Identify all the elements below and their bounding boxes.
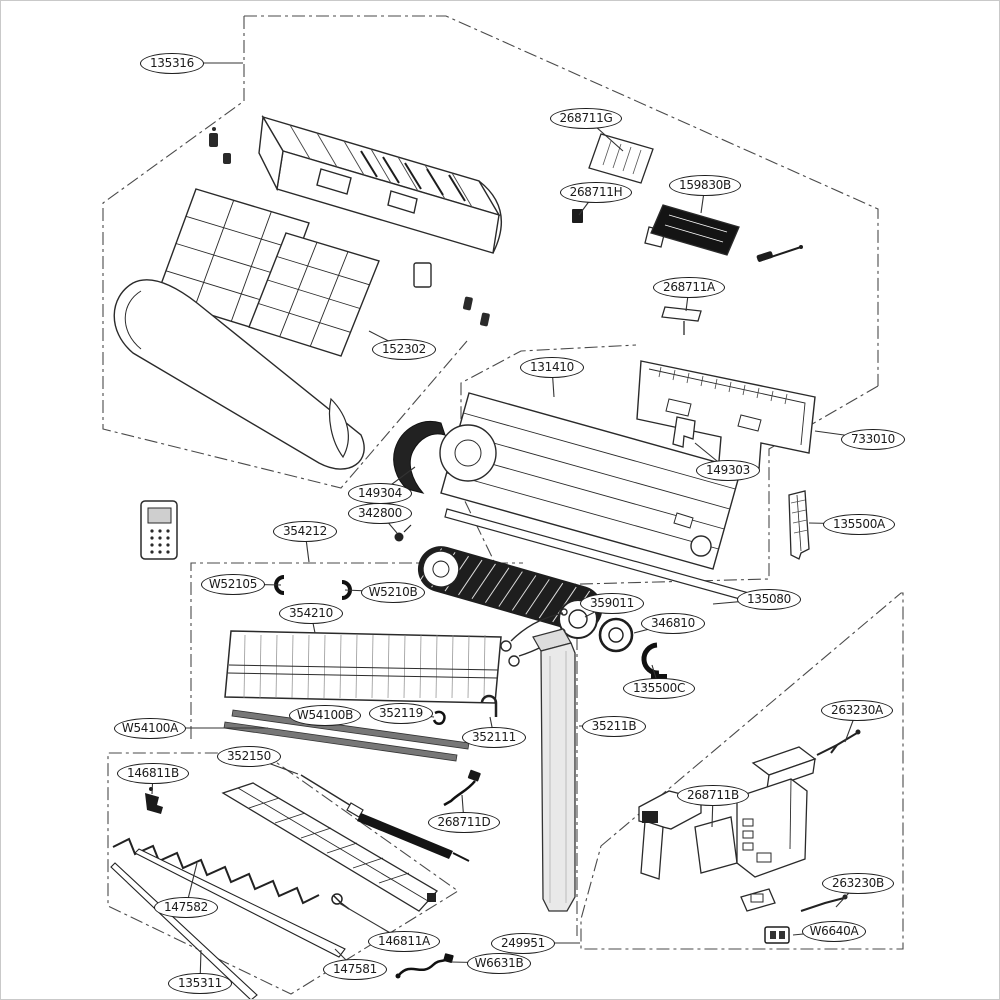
part-label-135500A: 135500A: [823, 514, 894, 535]
part-label-W6640A: W6640A: [802, 921, 866, 942]
part-label-147581: 147581: [323, 959, 387, 980]
control-box-group: [639, 747, 815, 911]
drain-hose: [533, 629, 575, 911]
bolt-342800: [395, 525, 412, 542]
part-label-W5210B: W5210B: [361, 582, 425, 603]
cable-w6631b: [396, 953, 454, 978]
part-label-733010: 733010: [841, 429, 905, 450]
part-label-359011: 359011: [580, 593, 644, 614]
part-label-268711B: 268711B: [677, 785, 748, 806]
part-label-352119: 352119: [369, 703, 433, 724]
part-label-135316: 135316: [140, 53, 204, 74]
connector-w6640a: [765, 927, 789, 943]
insulation-panel-268711b: [695, 817, 737, 873]
part-label-354212: 354212: [273, 521, 337, 542]
bracket-135500a: [789, 491, 809, 559]
part-label-W6631B: W6631B: [467, 953, 531, 974]
remote-control: [141, 501, 177, 559]
bracket-149303: [673, 417, 695, 447]
part-label-W54100B: W54100B: [289, 705, 360, 726]
part-label-152302: 152302: [372, 339, 436, 360]
part-label-35211B: 35211B: [582, 716, 646, 737]
part-label-146811A: 146811A: [368, 931, 439, 952]
part-label-W54100A: W54100A: [114, 718, 185, 739]
part-label-263230B: 263230B: [822, 873, 893, 894]
part-label-135500C: 135500C: [623, 678, 694, 699]
part-label-354210: 354210: [279, 603, 343, 624]
fan-bearing-346810: [600, 619, 632, 651]
part-label-147582: 147582: [154, 897, 218, 918]
diagram-artwork: [1, 1, 1000, 1000]
part-label-135080: 135080: [737, 589, 801, 610]
part-label-268711H: 268711H: [560, 182, 631, 203]
bracket-268711a: [662, 307, 701, 335]
display-pcb: [589, 134, 653, 183]
wire-263230a: [817, 730, 861, 756]
louver-assembly: [223, 783, 437, 911]
part-label-346810: 346810: [641, 613, 705, 634]
part-label-352150: 352150: [217, 746, 281, 767]
clip-146811b: [145, 787, 163, 814]
part-label-268711D: 268711D: [428, 812, 499, 833]
evaporator-coil: [225, 609, 567, 703]
part-label-149303: 149303: [696, 460, 760, 481]
part-label-131410: 131410: [520, 357, 584, 378]
screwdriver-tool: [756, 245, 803, 262]
part-label-135311: 135311: [168, 973, 232, 994]
part-label-146811B: 146811B: [117, 763, 188, 784]
part-label-268711G: 268711G: [550, 108, 621, 129]
bracket-149304: [394, 421, 445, 493]
cross-flow-fan: [412, 541, 607, 638]
part-label-149304: 149304: [348, 483, 412, 504]
part-label-263230A: 263230A: [821, 700, 892, 721]
part-label-W52105: W52105: [201, 574, 265, 595]
exploded-parts-diagram: 135316268711G268711H159830B268711A152302…: [0, 0, 1000, 1000]
display-assembly: [645, 205, 739, 255]
part-label-159830B: 159830B: [669, 175, 740, 196]
part-label-249951: 249951: [491, 933, 555, 954]
part-label-342800: 342800: [348, 503, 412, 524]
part-label-352111: 352111: [462, 727, 526, 748]
clip-352119: [434, 712, 444, 724]
part-label-268711A: 268711A: [653, 277, 724, 298]
